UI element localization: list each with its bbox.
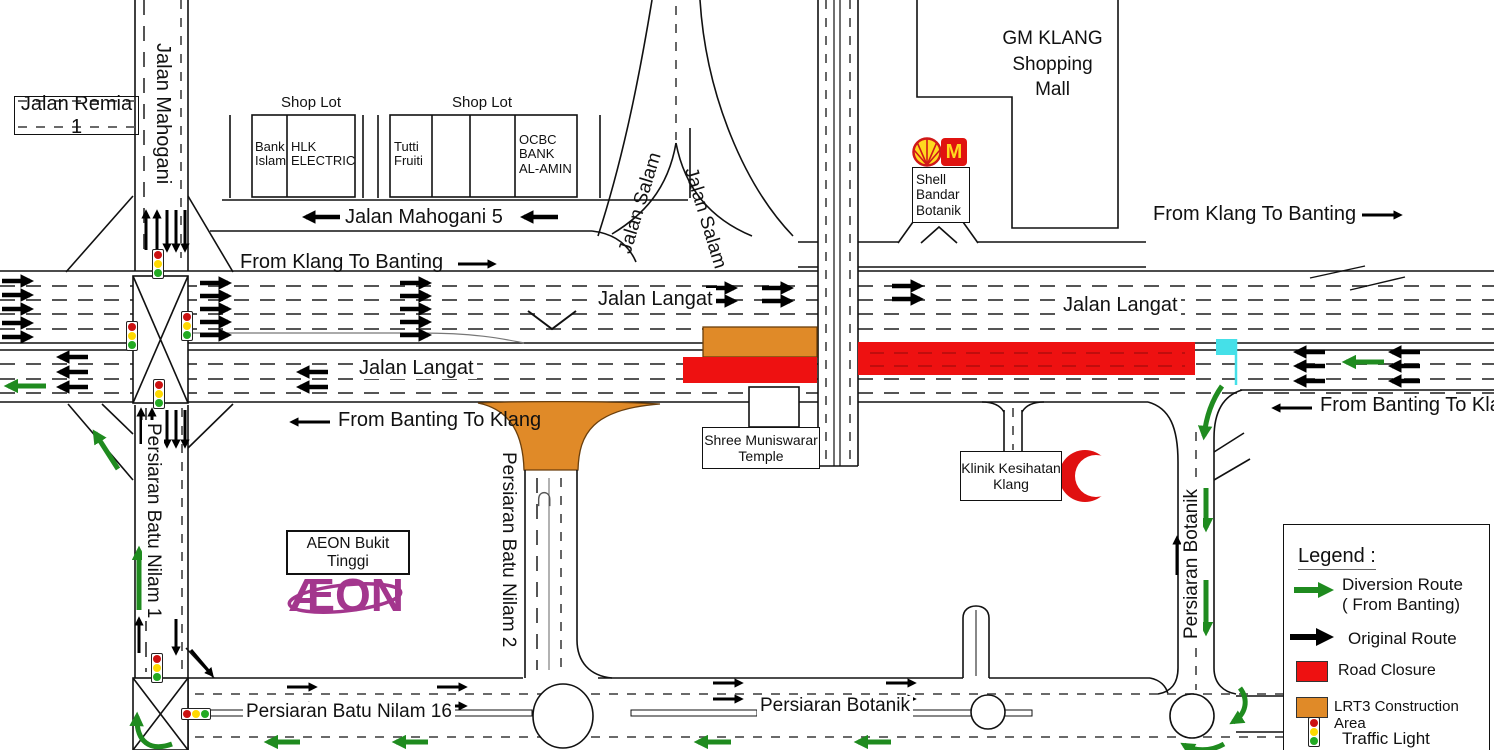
legend-title: Legend : [1298, 545, 1376, 570]
traffic-light-pbn1 [151, 653, 163, 683]
roundabout-pbn2 [533, 684, 593, 748]
legend: Legend : Diversion Route ( From Banting)… [1283, 524, 1490, 750]
traffic-light-junction-left [126, 321, 138, 351]
gm-klang-label: GM KLANG Shopping Mall [990, 26, 1115, 103]
klinik-label: Klinik Kesihatan Klang [960, 451, 1062, 501]
shree-temple-label: Shree Muniswarar Temple [702, 427, 820, 469]
jalan-langat-label-3: Jalan Langat [1060, 294, 1181, 316]
legend-diversion-label: Diversion Route ( From Banting) [1342, 575, 1463, 616]
jalan-mahogani-label: Jalan Mahogani [151, 40, 174, 187]
temple-building [749, 387, 799, 427]
jalan-remia-1-label: Jalan Remia 1 [14, 96, 139, 135]
lrt3-swatch [1296, 697, 1328, 718]
traffic-light-junction-bottom [153, 379, 165, 409]
diversion-route-icon [1294, 581, 1338, 599]
persiaran-batu-nilam-1-label: Persiaran Batu Nilam 1 [142, 420, 164, 621]
bottom-road [188, 606, 1465, 748]
persiaran-botanik-road [1148, 390, 1290, 738]
diversion-map: Jalan Remia 1 Jalan Mahogani Shop Lot Sh… [0, 0, 1494, 750]
shop-hlk-electric: HLK ELECTRIC [291, 140, 355, 169]
shell-logo-icon [914, 139, 941, 166]
map-canvas [0, 0, 1494, 750]
aeon-logo: ÆON [289, 570, 404, 621]
legend-closure-label: Road Closure [1338, 662, 1436, 680]
legend-lrt3-label: LRT3 Construction Area [1334, 698, 1489, 732]
shell-station-label: Shell Bandar Botanik [912, 167, 970, 223]
jalan-langat-label-2: Jalan Langat [356, 357, 477, 379]
yellow-light [154, 260, 162, 268]
green-light [154, 269, 162, 277]
from-banting-to-klang-right: From Banting To Klang [1320, 394, 1494, 416]
legend-original-label: Original Route [1348, 629, 1457, 649]
roundabout-botanik [1170, 694, 1214, 738]
shop-tutti-fruiti: Tutti Fruiti [394, 140, 423, 169]
jalan-mahogani-5-label: Jalan Mahogani 5 [345, 206, 503, 228]
red-light [154, 251, 162, 259]
from-klang-to-banting-right: From Klang To Banting [1153, 203, 1356, 225]
shop-ocbc: OCBC BANK AL-AMIN [519, 133, 572, 176]
vertical-crossing-road [818, 0, 858, 466]
traffic-light-junction-right [181, 311, 193, 341]
shop-bank-islam: Bank Islam [255, 140, 286, 169]
persiaran-botanik-bottom-label: Persiaran Botanik [757, 696, 913, 717]
jalan-langat-label-1: Jalan Langat [595, 288, 716, 310]
shop-lot-a-title: Shop Lot [281, 95, 341, 112]
road-closure-swatch [1296, 661, 1328, 682]
legend-traffic-light-label: Traffic Light [1342, 729, 1430, 749]
persiaran-botanik-right-label: Persiaran Botanik [1181, 486, 1203, 642]
original-route-icon [1290, 627, 1336, 647]
u-turn-icon: ∩ [534, 482, 554, 513]
persiaran-batu-nilam-16-label: Persiaran Batu Nilam 16 [243, 702, 455, 723]
persiaran-batu-nilam-2-label: Persiaran Batu Nilam 2 [497, 452, 519, 647]
shop-lot-b-title: Shop Lot [452, 95, 512, 112]
roundabout-small [971, 695, 1005, 729]
traffic-light-legend-icon [1308, 717, 1320, 747]
red-crescent-icon [1059, 450, 1117, 502]
traffic-light-mahogani [152, 249, 164, 279]
mcdonalds-icon: M [941, 138, 967, 166]
klinik-access-road [982, 402, 1044, 452]
from-klang-to-banting-left: From Klang To Banting [240, 251, 443, 273]
from-banting-to-klang-left: From Banting To Klang [338, 409, 541, 431]
traffic-light-pbn16 [181, 708, 211, 720]
